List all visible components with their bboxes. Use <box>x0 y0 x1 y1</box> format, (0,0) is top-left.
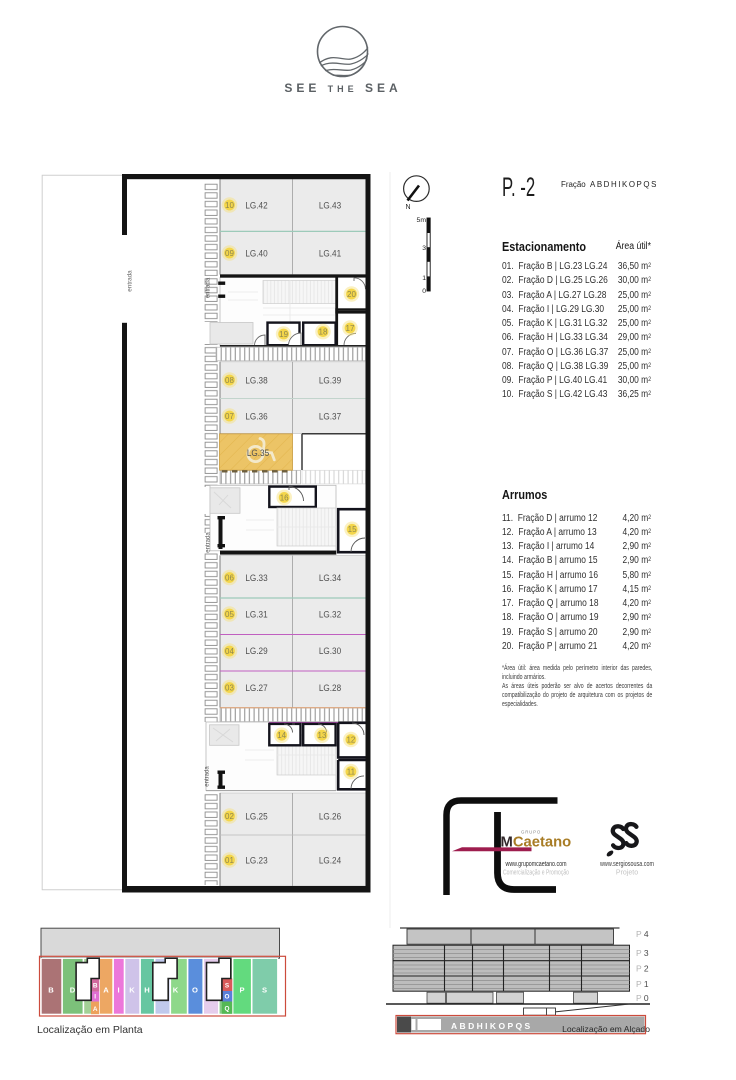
svg-text:08: 08 <box>225 376 234 385</box>
svg-text:P 4: P 4 <box>636 929 649 939</box>
svg-text:LG.33: LG.33 <box>245 573 267 584</box>
svg-text:I: I <box>117 986 119 995</box>
svg-text:LG.42: LG.42 <box>245 201 267 212</box>
svg-text:LG.39: LG.39 <box>319 376 341 387</box>
svg-text:Comercialização e Promoção: Comercialização e Promoção <box>503 870 569 877</box>
svg-text:02: 02 <box>225 812 234 821</box>
svg-text:18: 18 <box>319 328 328 337</box>
svg-text:entrada: entrada <box>127 270 134 292</box>
svg-text:K: K <box>173 986 179 995</box>
svg-text:B: B <box>48 986 54 995</box>
svg-text:LG.30: LG.30 <box>319 646 341 657</box>
svg-text:P 1: P 1 <box>636 979 649 989</box>
svg-text:11: 11 <box>347 768 356 777</box>
svg-text:LG.27: LG.27 <box>245 683 267 694</box>
svg-text:LG.25: LG.25 <box>245 812 267 823</box>
svg-text:N: N <box>405 204 410 211</box>
svg-text:S: S <box>262 986 267 995</box>
svg-text:14: 14 <box>277 731 286 740</box>
svg-text:20: 20 <box>347 290 356 299</box>
svg-text:H: H <box>144 986 149 995</box>
svg-text:1: 1 <box>422 275 426 282</box>
svg-text:13: 13 <box>318 731 327 740</box>
svg-text:0: 0 <box>422 288 426 295</box>
svg-text:3: 3 <box>422 245 426 252</box>
svg-text:Q: Q <box>225 1006 230 1013</box>
svg-text:D: D <box>70 986 76 995</box>
svg-text:19: 19 <box>279 330 288 339</box>
svg-text:www.sergiosousa.com: www.sergiosousa.com <box>599 861 654 868</box>
svg-text:10: 10 <box>225 201 234 210</box>
svg-text:LG.40: LG.40 <box>245 249 267 260</box>
svg-text:LG.38: LG.38 <box>245 376 267 387</box>
svg-text:LG.23: LG.23 <box>245 856 267 867</box>
svg-text:A: A <box>93 1006 98 1013</box>
svg-text:S: S <box>225 983 230 990</box>
svg-text:5m: 5m <box>417 217 427 224</box>
svg-text:LG.36: LG.36 <box>245 412 267 423</box>
svg-text:LG.26: LG.26 <box>319 812 341 823</box>
svg-text:LG.32: LG.32 <box>319 610 341 621</box>
svg-text:09: 09 <box>225 249 234 258</box>
svg-text:LG.34: LG.34 <box>319 573 342 584</box>
svg-text:07: 07 <box>225 412 234 421</box>
svg-text:16: 16 <box>280 493 289 502</box>
svg-text:LG.35: LG.35 <box>247 448 269 459</box>
svg-text:12: 12 <box>346 735 355 744</box>
svg-text:LG.37: LG.37 <box>319 412 341 423</box>
svg-text:Q: Q <box>208 986 214 995</box>
svg-text:LG.28: LG.28 <box>319 683 341 694</box>
svg-text:entrada: entrada <box>206 532 212 553</box>
svg-text:O: O <box>225 994 230 1001</box>
svg-text:I: I <box>94 994 96 1001</box>
svg-text:P: P <box>239 986 244 995</box>
svg-text:Projeto: Projeto <box>616 870 638 877</box>
svg-text:LG.43: LG.43 <box>319 201 341 212</box>
svg-text:01: 01 <box>225 856 234 865</box>
svg-text:www.grupomcaetano.com: www.grupomcaetano.com <box>505 861 567 868</box>
svg-text:entrada: entrada <box>206 277 212 298</box>
svg-text:P 2: P 2 <box>636 964 649 974</box>
svg-text:03: 03 <box>225 683 234 692</box>
svg-text:P 3: P 3 <box>636 948 649 958</box>
svg-text:K: K <box>129 986 135 995</box>
svg-text:LG.24: LG.24 <box>319 856 342 867</box>
svg-text:LG.41: LG.41 <box>319 249 341 260</box>
svg-text:LG.31: LG.31 <box>245 610 267 621</box>
svg-text:04: 04 <box>225 647 234 656</box>
svg-text:P 0: P 0 <box>636 993 649 1003</box>
svg-text:06: 06 <box>225 573 234 582</box>
svg-text:17: 17 <box>346 324 355 333</box>
svg-text:entrada: entrada <box>205 766 211 787</box>
svg-text:A: A <box>103 986 109 995</box>
svg-text:05: 05 <box>225 610 234 619</box>
svg-text:O: O <box>192 986 198 995</box>
svg-text:MCaetano: MCaetano <box>501 835 572 851</box>
svg-text:15: 15 <box>348 525 357 534</box>
svg-text:B: B <box>93 983 98 990</box>
svg-text:LG.29: LG.29 <box>245 646 267 657</box>
